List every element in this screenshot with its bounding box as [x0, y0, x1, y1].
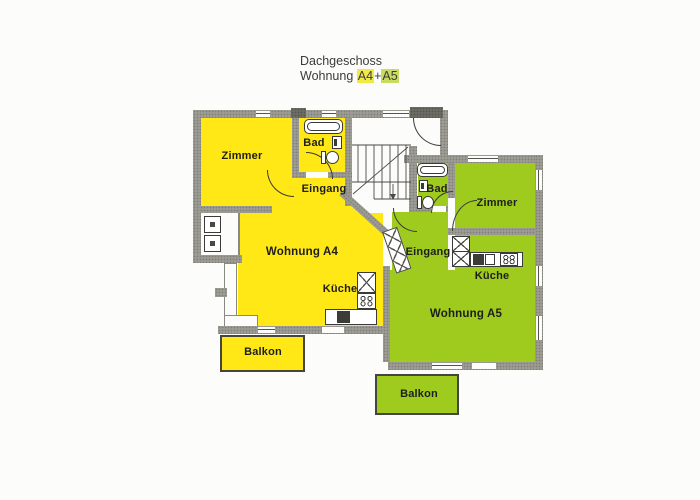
knee-wall-pier	[215, 288, 227, 297]
cupboard-icon	[452, 236, 470, 252]
bathtub-icon	[304, 119, 343, 134]
room-label-a4-zimmer: Zimmer	[222, 150, 263, 162]
room-label-a5-wohnen: Wohnung A5	[430, 308, 502, 320]
room-label-a5-balkon: Balkon	[400, 388, 438, 400]
plan-title: Dachgeschoss Wohnung A4+A5	[300, 54, 399, 84]
toilet-icon	[326, 151, 339, 164]
room-label-a5-eingang: Eingang	[406, 246, 451, 258]
title-line2: Wohnung A4+A5	[300, 69, 399, 84]
wall-a4-bottom	[218, 326, 383, 334]
chimney-block	[410, 107, 443, 118]
window-icon	[536, 266, 542, 286]
chimney-block	[291, 108, 306, 118]
toilet-icon	[422, 196, 434, 209]
room-label-a4-eingang: Eingang	[302, 183, 347, 195]
unit-detail	[210, 222, 215, 227]
built-in-unit-icon	[204, 235, 221, 252]
basin-detail	[421, 183, 424, 189]
kitchen-counter	[325, 309, 377, 325]
wall-a4-zimmer-right	[292, 118, 299, 178]
window-icon	[536, 170, 542, 190]
basin-detail	[334, 139, 337, 146]
wall-left	[193, 110, 201, 263]
room-label-a4-wohnen: Wohnung A4	[266, 246, 338, 258]
built-in-unit-icon	[204, 216, 221, 233]
title-wohnung: Wohnung	[300, 69, 353, 83]
room-label-a4-bad: Bad	[303, 137, 324, 149]
window-icon	[322, 111, 336, 117]
kitchen-sink-icon	[337, 311, 350, 323]
kitchen-sink-icon	[473, 254, 484, 265]
room-label-a5-bad: Bad	[426, 183, 447, 195]
window-icon	[383, 111, 409, 117]
cupboard-icon	[452, 251, 470, 267]
staircase-icon	[351, 142, 413, 202]
wall-left-stub	[193, 255, 242, 263]
door-gap-a4-balcony	[322, 327, 344, 333]
wall-a5-bottom	[388, 362, 543, 370]
floor-plan-page: Zimmer Bad Eingang Wohnung A4 Küche Balk…	[0, 0, 700, 500]
title-line1: Dachgeschoss	[300, 54, 399, 69]
unit-detail	[210, 241, 215, 246]
room-label-a5-kueche: Küche	[475, 270, 510, 282]
cupboard-icon	[357, 272, 376, 293]
window-icon	[432, 363, 462, 369]
door-gap-a5-balcony	[472, 363, 496, 369]
room-label-a4-kueche: Küche	[323, 283, 358, 295]
wall-a4-zimmer-bottom	[200, 206, 272, 213]
window-icon	[468, 156, 498, 162]
bathtub-basin	[420, 166, 445, 174]
stove-icon	[357, 293, 376, 309]
washbasin-icon	[332, 136, 342, 149]
counter-unit	[485, 254, 495, 265]
window-icon	[258, 327, 275, 333]
bathtub-icon	[417, 163, 448, 177]
stove-icon	[500, 253, 518, 266]
window-icon	[536, 316, 542, 340]
bathtub-basin	[307, 122, 340, 131]
unit-a5-badge: A5	[381, 69, 398, 83]
unit-a4-badge: A4	[357, 69, 374, 83]
wall-a4-a5-divider	[383, 266, 390, 362]
room-label-a5-zimmer: Zimmer	[477, 197, 518, 209]
window-icon	[256, 111, 270, 117]
room-label-a4-balkon: Balkon	[244, 346, 282, 358]
